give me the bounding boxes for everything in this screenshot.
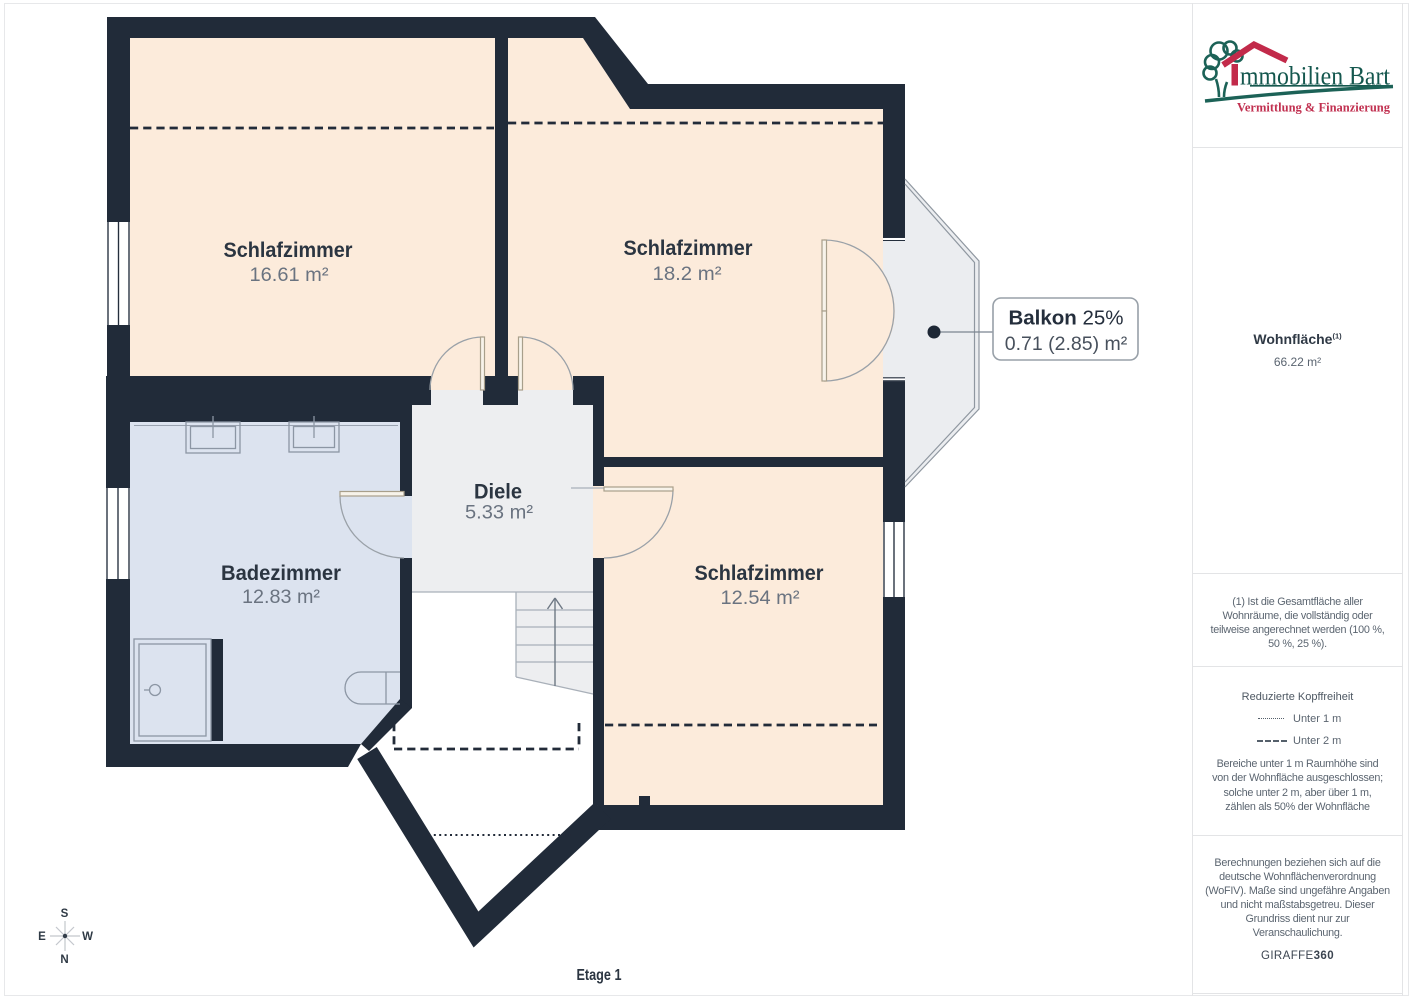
- svg-text:Schlafzimmer: Schlafzimmer: [224, 238, 354, 262]
- svg-text:16.61 m²: 16.61 m²: [250, 264, 330, 286]
- svg-text:Balkon 25%: Balkon 25%: [1008, 307, 1123, 330]
- svg-text:Vermittlung & Finanzierung: Vermittlung & Finanzierung: [1237, 101, 1391, 115]
- svg-text:12.54 m²: 12.54 m²: [721, 587, 801, 609]
- svg-text:Etage 1: Etage 1: [577, 967, 622, 984]
- svg-text:Schlafzimmer: Schlafzimmer: [624, 236, 754, 260]
- svg-text:Badezimmer: Badezimmer: [221, 561, 342, 585]
- svg-text:12.83 m²: 12.83 m²: [242, 586, 321, 608]
- svg-text:N: N: [60, 954, 68, 966]
- svg-text:18.2 m²: 18.2 m²: [653, 263, 723, 285]
- svg-text:Diele: Diele: [474, 480, 522, 504]
- svg-text:W: W: [82, 931, 93, 943]
- svg-text:5.33 m²: 5.33 m²: [465, 502, 534, 524]
- svg-text:E: E: [38, 931, 46, 943]
- svg-text:Schlafzimmer: Schlafzimmer: [695, 561, 825, 585]
- svg-text:0.71 (2.85) m²: 0.71 (2.85) m²: [1005, 333, 1128, 355]
- svg-text:S: S: [61, 908, 69, 920]
